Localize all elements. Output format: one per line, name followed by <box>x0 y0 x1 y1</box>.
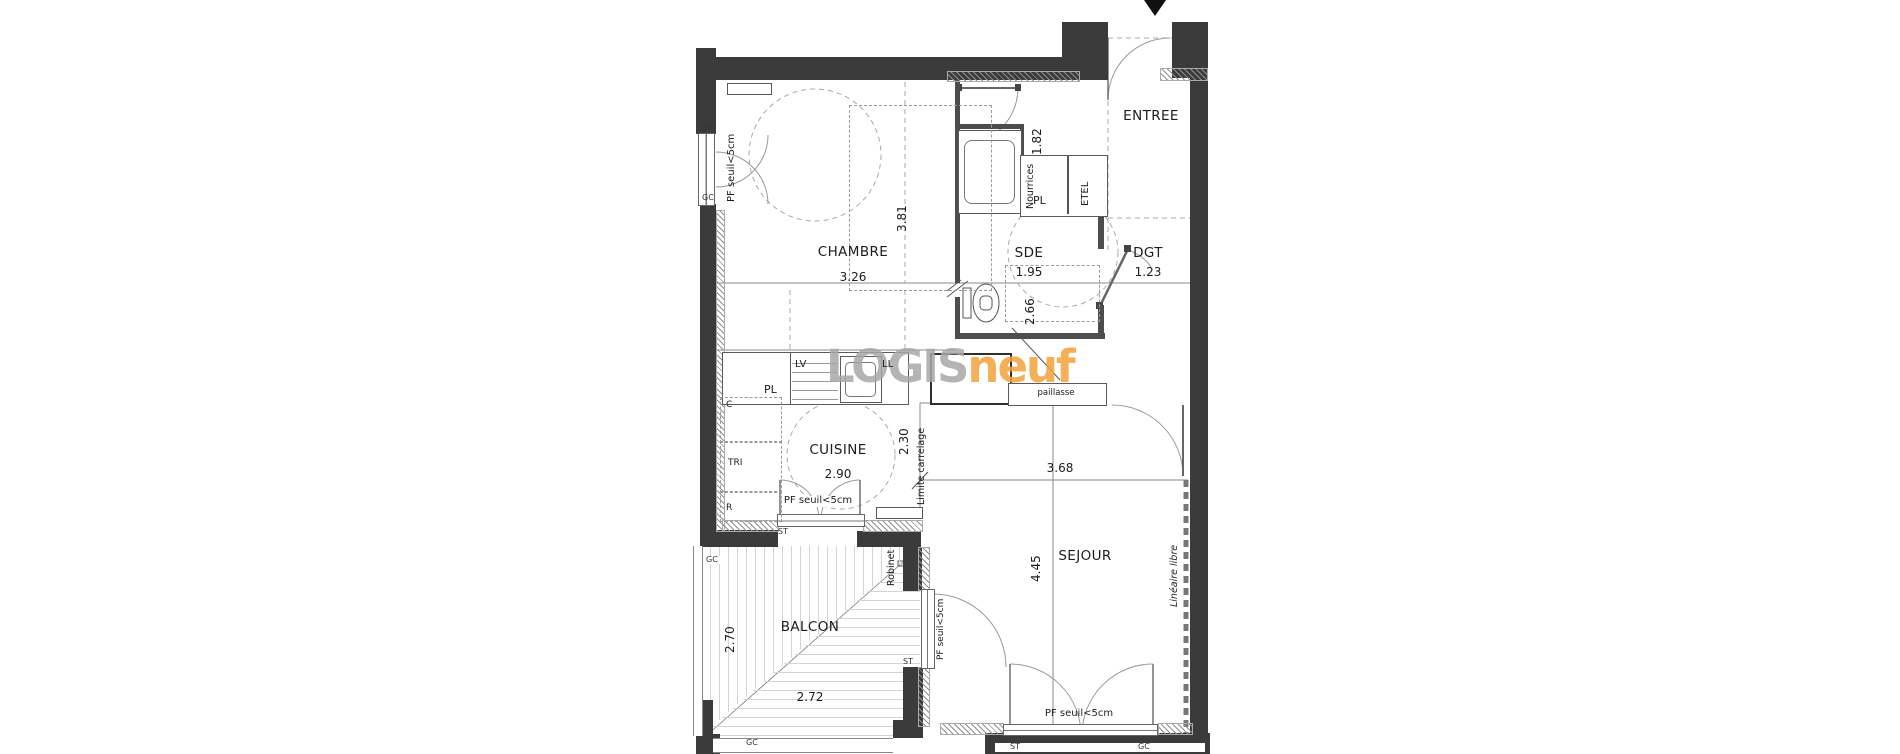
dim-cuisine-h: 2.30 <box>898 428 911 455</box>
dim-nourrices: 1.82 <box>1031 128 1044 155</box>
label-pf-chambre: PF seuil<5cm <box>727 134 738 202</box>
room-label-sejour: SEJOUR <box>1058 549 1111 563</box>
hatch-top <box>947 71 1080 82</box>
wall-sde-right-upper <box>1098 215 1104 249</box>
dim-sejour-h: 4.45 <box>1030 555 1043 582</box>
label-pl-entree: PL <box>1033 195 1046 207</box>
label-gc-3: GC <box>744 739 760 747</box>
label-pl-cuisine: PL <box>764 384 777 396</box>
room-label-sde: SDE <box>1015 246 1044 260</box>
wall-cuisine-balcon-left <box>700 530 778 547</box>
balcony-rail-bottom <box>713 738 893 753</box>
hatch-balcon-bottom <box>918 667 930 727</box>
label-lineaire-libre: Linéaire libre <box>1170 545 1180 607</box>
label-st-1: ST <box>702 124 712 132</box>
window-cuisine-door-sill <box>777 514 865 527</box>
label-ll: LL <box>882 360 893 371</box>
entrance-arrow-icon <box>1144 0 1166 16</box>
label-st-4: ST <box>1010 743 1020 751</box>
label-closet-c: C <box>726 401 732 410</box>
bed-zone <box>849 105 992 291</box>
room-label-dgt: DGT <box>1133 246 1163 260</box>
dim-sde-h: 2.66 <box>1024 298 1037 325</box>
label-limite-carrelage: Limite carrelage <box>917 428 927 505</box>
floor-plan: LOGISneuf ENTREE CHAMBRE 3.26 3.81 SDE 1… <box>0 0 1900 754</box>
dim-chambre-w: 3.26 <box>840 271 867 284</box>
hatch-top-right <box>1160 68 1208 81</box>
dim-dgt-w: 1.23 <box>1135 266 1162 279</box>
label-pf-sejour: PF seuil<5cm <box>1045 709 1113 720</box>
radiator-chambre <box>727 83 772 95</box>
label-gc-4: GC <box>1138 743 1150 751</box>
chambre-window-arc-2 <box>716 152 768 204</box>
label-pf-balcon: PF seuil<5cm <box>937 599 946 660</box>
wall-chambre-sde-lower <box>955 297 960 337</box>
wall-balcon-topright-h <box>857 531 921 547</box>
label-gc-2: GC <box>704 556 720 564</box>
chambre-window-arc-1 <box>716 135 768 187</box>
label-st-2: ST <box>778 528 788 536</box>
logisneuf-logo: LOGISneuf <box>826 344 1074 389</box>
dim-balcon-h: 2.70 <box>724 626 737 653</box>
wall-sde-bottom <box>955 333 1105 339</box>
window-sejour-door-sill <box>1003 724 1158 736</box>
window-balcon-sejour <box>921 589 935 669</box>
room-label-cuisine: CUISINE <box>809 443 866 457</box>
wall-left <box>700 204 716 546</box>
logo-orange-part: neuf <box>967 340 1073 393</box>
hatch-balcon-top <box>918 547 930 591</box>
hatch-cuisine-right <box>863 520 923 532</box>
wall-right <box>1190 22 1208 754</box>
dim-balcon-w: 2.72 <box>797 691 824 704</box>
room-label-balcon: BALCON <box>781 620 840 634</box>
sde-door-leaf <box>1100 249 1128 306</box>
radiator-sejour <box>876 507 923 519</box>
room-label-chambre: CHAMBRE <box>818 245 888 259</box>
label-gc-1: GC <box>702 194 714 202</box>
dim-sejour-w: 3.68 <box>1047 462 1074 475</box>
label-paillasse: paillasse <box>1038 389 1075 398</box>
label-etel: ETEL <box>1081 182 1092 206</box>
closet-divider <box>1067 156 1069 214</box>
dim-sde-w: 1.95 <box>1016 266 1043 279</box>
wall-top-left-corner <box>696 48 716 134</box>
hatch-bottom-right <box>1158 723 1193 735</box>
label-st-3: ST <box>903 658 913 666</box>
balcony-rail-left <box>693 546 703 736</box>
dim-cuisine-w: 2.90 <box>825 468 852 481</box>
label-closet-tri: TRI <box>728 459 742 468</box>
dim-chambre-h: 3.81 <box>896 205 909 232</box>
label-lv: LV <box>795 360 806 371</box>
room-label-entree: ENTREE <box>1123 109 1179 123</box>
logo-gray-part: LOGIS <box>826 340 967 393</box>
bottom-wall-inner-strip <box>995 743 1205 752</box>
label-closet-r: R <box>726 504 732 513</box>
label-robinet: Robinet <box>887 550 897 586</box>
dgt-sejour-door-arc <box>1112 405 1183 476</box>
hatch-bottom-left <box>940 723 1004 735</box>
label-pf-cuisine: PF seuil<5cm <box>782 496 854 507</box>
